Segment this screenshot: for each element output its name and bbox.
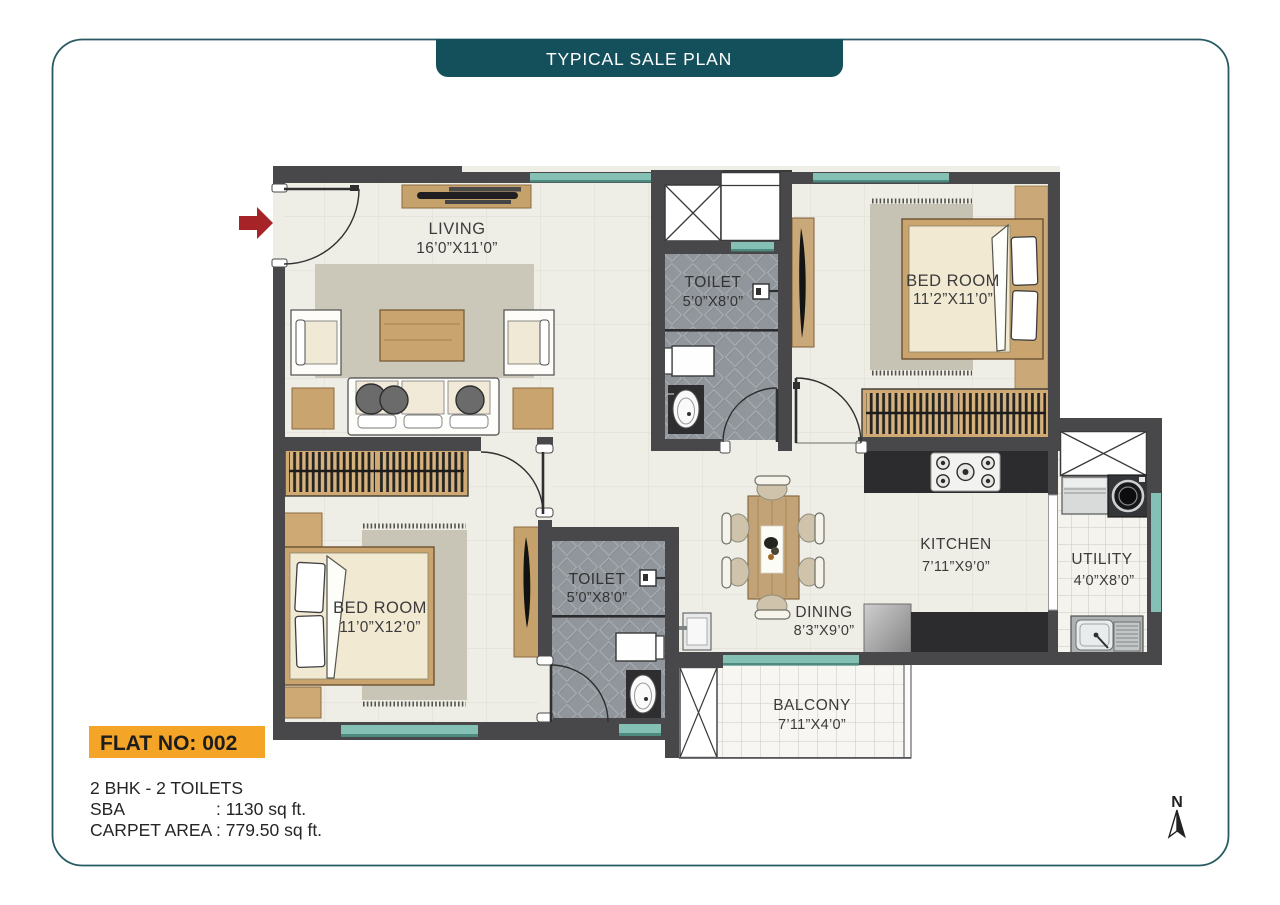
svg-text:2 BHK - 2 TOILETS: 2 BHK - 2 TOILETS [90, 778, 243, 798]
svg-text:5’0”X8’0”: 5’0”X8’0” [683, 294, 744, 310]
svg-text:FLAT NO: 002: FLAT NO: 002 [100, 732, 237, 755]
svg-text:KITCHEN: KITCHEN [920, 536, 992, 553]
svg-text:11’2”X11’0”: 11’2”X11’0” [913, 291, 993, 308]
svg-text:LIVING: LIVING [428, 220, 485, 238]
svg-text:TOILET: TOILET [685, 274, 742, 291]
svg-text:16’0”X11’0”: 16’0”X11’0” [416, 240, 497, 257]
svg-text:5’0”X8’0”: 5’0”X8’0” [567, 590, 628, 606]
svg-text:BALCONY: BALCONY [773, 697, 851, 714]
svg-text:N: N [1171, 794, 1183, 811]
svg-text:TOILET: TOILET [569, 571, 626, 588]
svg-text:: 1130 sq ft.: : 1130 sq ft. [216, 799, 306, 819]
svg-text:7’11”X4’0”: 7’11”X4’0” [778, 717, 846, 733]
svg-text:DINING: DINING [795, 604, 852, 621]
svg-text:UTILITY: UTILITY [1071, 551, 1132, 568]
svg-text:: 779.50 sq ft.: : 779.50 sq ft. [216, 820, 322, 840]
svg-text:BED ROOM: BED ROOM [906, 272, 1000, 290]
svg-text:CARPET AREA: CARPET AREA [90, 820, 213, 840]
svg-text:SBA: SBA [90, 799, 125, 819]
svg-text:4’0”X8’0”: 4’0”X8’0” [1074, 573, 1135, 589]
svg-text:BED ROOM: BED ROOM [333, 599, 427, 617]
svg-text:11’0”X12’0”: 11’0”X12’0” [339, 619, 420, 636]
svg-text:TYPICAL SALE PLAN: TYPICAL SALE PLAN [546, 49, 732, 69]
svg-text:7’11”X9’0”: 7’11”X9’0” [922, 559, 990, 575]
svg-text:8’3”X9’0”: 8’3”X9’0” [794, 623, 855, 639]
